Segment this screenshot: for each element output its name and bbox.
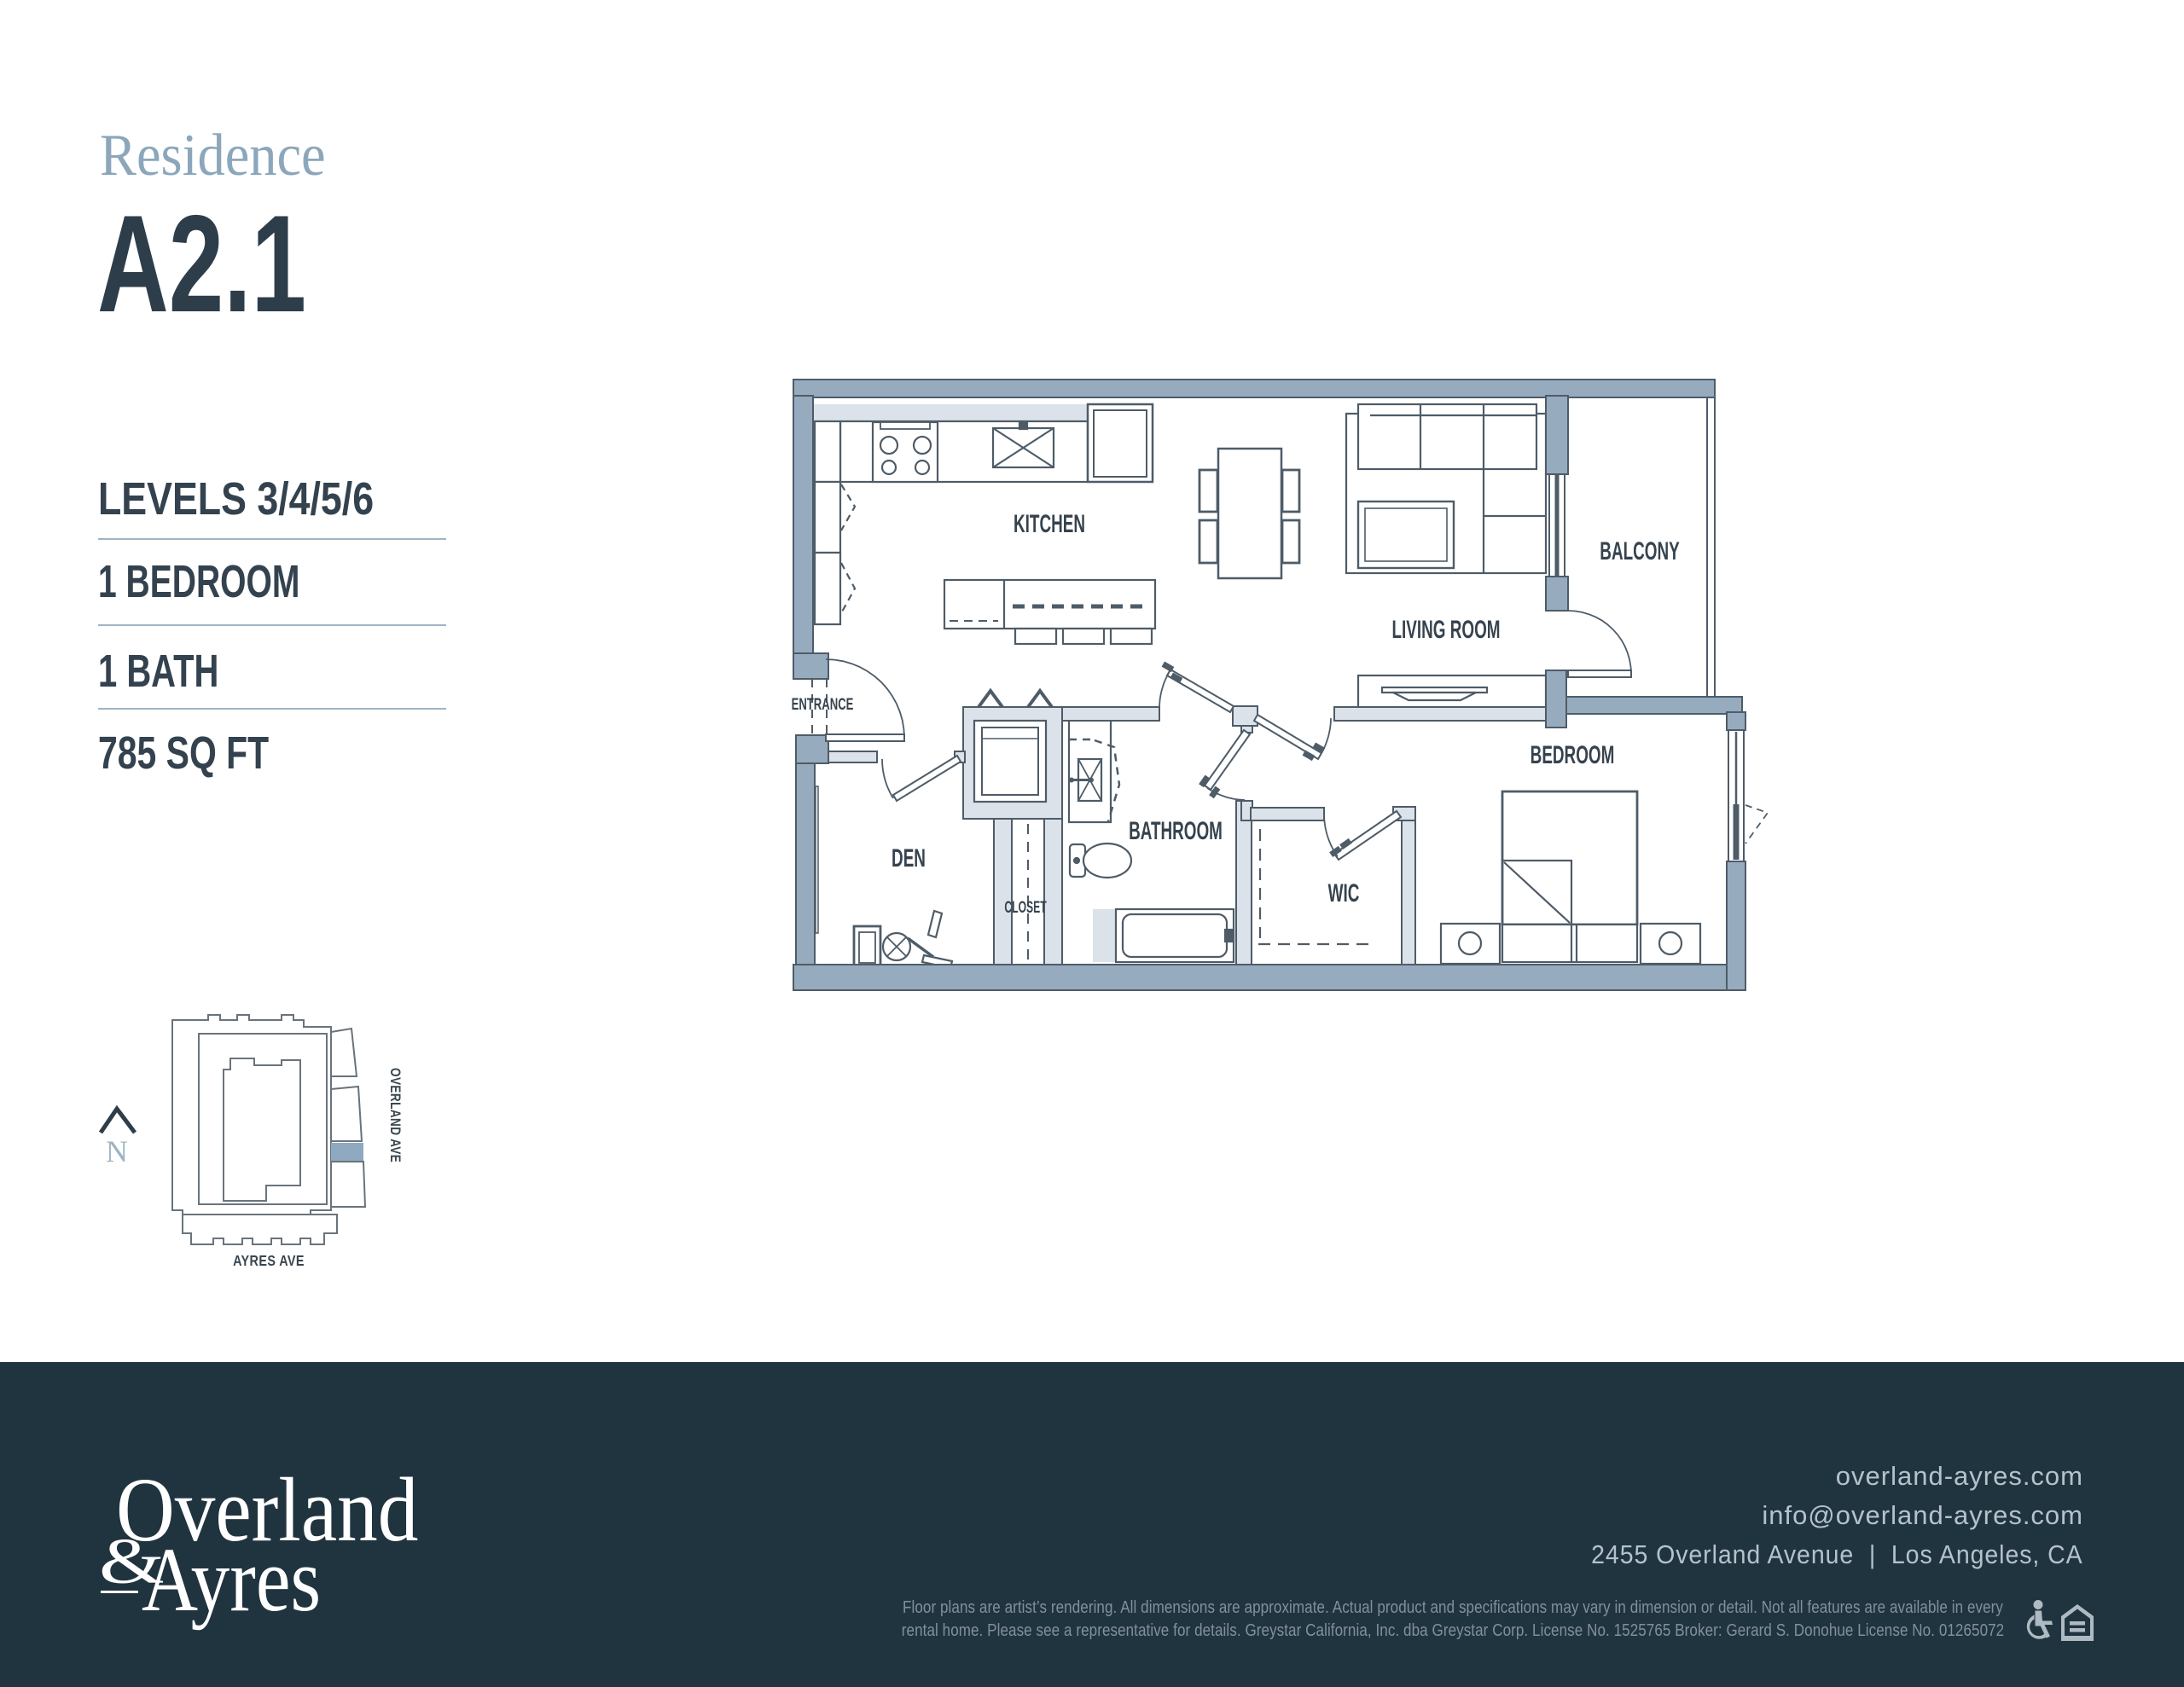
svg-text:BALCONY: BALCONY: [1600, 537, 1680, 566]
svg-text:N: N: [106, 1134, 128, 1168]
svg-text:DEN: DEN: [892, 844, 926, 873]
svg-text:KITCHEN: KITCHEN: [1014, 510, 1085, 539]
svg-text:ENTRANCE: ENTRANCE: [792, 696, 854, 714]
svg-text:WIC: WIC: [1328, 879, 1360, 908]
svg-text:BEDROOM: BEDROOM: [1531, 741, 1615, 770]
svg-text:CLOSET: CLOSET: [1004, 900, 1046, 917]
svg-text:AYRES AVE: AYRES AVE: [233, 1253, 305, 1270]
svg-text:OVERLAND AVE: OVERLAND AVE: [387, 1068, 404, 1162]
svg-text:BATHROOM: BATHROOM: [1129, 817, 1223, 846]
svg-text:LIVING ROOM: LIVING ROOM: [1391, 616, 1500, 645]
